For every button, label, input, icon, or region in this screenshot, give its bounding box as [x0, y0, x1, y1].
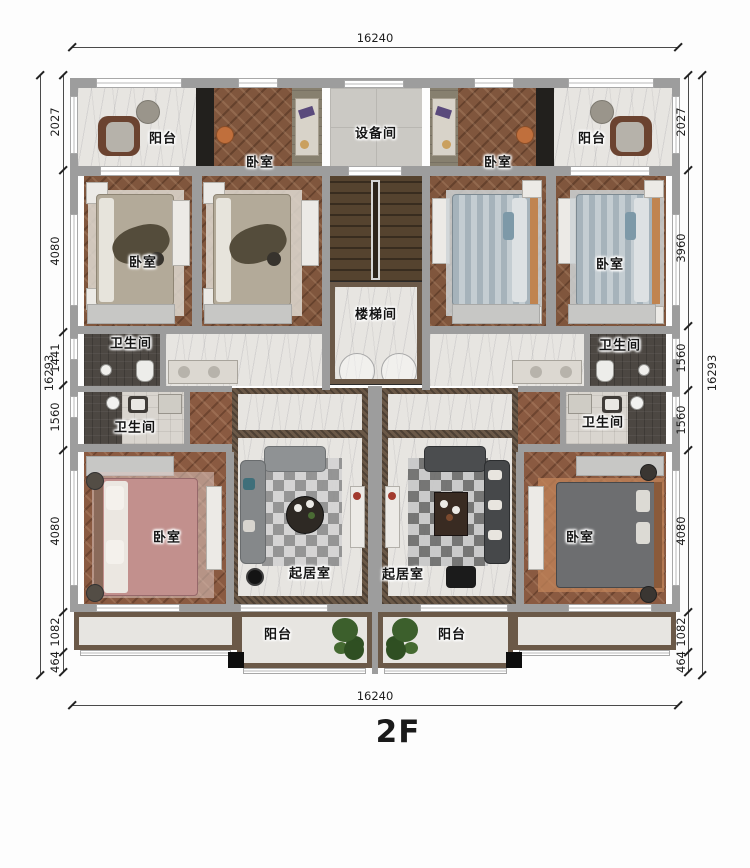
window-undertop-1 [100, 166, 180, 176]
stool-right [446, 566, 476, 588]
bed-d-headboard [652, 196, 660, 304]
window-top-4 [474, 78, 514, 88]
bed-d-pillows [634, 198, 649, 302]
dresser-lower-left [206, 486, 222, 570]
toilet-lower-right-lid [605, 399, 619, 410]
window-top-3 [344, 80, 404, 88]
wall-bath-entry-left [184, 392, 190, 444]
plate-right-2 [452, 506, 460, 514]
plate-left-1 [294, 504, 302, 512]
washer-lower-left [158, 394, 182, 414]
label-bathroom-lower-right: 卫生间 [582, 412, 624, 431]
sofa-right-pillow-2 [488, 500, 502, 510]
side-table-balcony-right [590, 100, 614, 124]
window-left-5 [70, 470, 78, 586]
dimline-right-total [702, 75, 703, 675]
wall-row4-top-right [518, 386, 680, 392]
sink-bath-ul [100, 364, 112, 376]
bed-b-accent-pillow [267, 252, 281, 266]
bed-lower-left-headboard [94, 478, 103, 596]
dim-right-0: 2027 [674, 107, 688, 136]
window-left-4 [70, 396, 78, 418]
dim-top: 16240 [357, 31, 394, 45]
window-top-1 [96, 78, 182, 88]
dimline-left-chain [63, 75, 64, 672]
sofa-left-pillow-2 [243, 520, 255, 532]
label-balcony-top-right: 阳台 [578, 128, 606, 147]
wall-stair-right [422, 166, 430, 390]
side-table-balcony-left [136, 100, 160, 124]
label-bathroom-lower-left: 卫生间 [114, 417, 156, 436]
chair-bedroom-top-right [516, 126, 534, 144]
wall-row4-top-left [70, 386, 232, 392]
plate-left-2 [306, 500, 314, 508]
wall-bed-a-b [192, 176, 202, 326]
dim-left-0: 2027 [48, 107, 62, 136]
window-left-3 [70, 338, 78, 360]
wall-bed-c-d [546, 176, 556, 326]
console-right-flowers [388, 492, 396, 500]
stool-lower-left-bottom [86, 584, 104, 602]
dim-left-4: 4080 [48, 516, 62, 545]
stool-lower-right-top [640, 464, 657, 481]
label-bedroom-mid-left: 卧室 [129, 252, 157, 271]
toilet-bath-ul [136, 360, 154, 382]
balcony-bottom-right-a [513, 612, 676, 650]
balcony-column-left [228, 652, 244, 668]
window-left-2 [70, 214, 78, 306]
label-bedroom-lower-left: 卧室 [153, 527, 181, 546]
wall-bath-div-left [160, 334, 166, 386]
dim-left-3: 1560 [48, 402, 62, 431]
plant-right-leaf-1 [392, 618, 418, 642]
dim-left-6: 464 [48, 651, 62, 673]
chair-bedroom-top-left [216, 126, 234, 144]
label-living-room-right: 起居室 [382, 564, 424, 583]
window-bottom-1 [96, 604, 180, 612]
wall-center-balcony [372, 612, 378, 674]
balcony-window-left-b [243, 668, 366, 674]
label-bathroom-upper-right: 卫生间 [599, 335, 641, 354]
stool-lower-left-top [86, 472, 104, 490]
wardrobe-d [568, 304, 656, 324]
dresser-a [172, 200, 190, 266]
label-stairwell: 楼梯间 [355, 304, 397, 323]
dimline-left-total [40, 75, 41, 675]
dim-right-1: 3960 [674, 233, 688, 262]
plant-right-leaf-2 [386, 640, 406, 660]
speaker-left [246, 568, 264, 586]
wall-bath-entry-right [560, 392, 566, 444]
dim-right-4: 4080 [674, 516, 688, 545]
wall-bedlr-living [516, 452, 524, 604]
bed-lower-right-pillow-1 [636, 490, 650, 512]
vanity-right-sink-2 [560, 366, 572, 378]
door-arc-right [381, 353, 417, 384]
bed-lower-left-pillow-1 [106, 486, 124, 510]
stair-rail [371, 180, 380, 280]
dimline-bottom [72, 705, 678, 706]
balcony-bottom-left-a [74, 612, 237, 650]
plant-left-leaf-2 [344, 640, 364, 660]
window-bottom-3 [420, 604, 508, 612]
wall-bedll-living [226, 452, 234, 604]
label-bedroom-top-right: 卧室 [484, 152, 512, 171]
label-bedroom-lower-right: 卧室 [566, 527, 594, 546]
entry-left-floor [190, 392, 232, 452]
vanity-left-sink-2 [208, 366, 220, 378]
hall-left-floor [238, 394, 362, 430]
dresser-b [301, 200, 319, 266]
flowers-table-right [446, 514, 453, 521]
dim-right-3: 1560 [674, 405, 688, 434]
console-left-flowers [353, 492, 361, 500]
vanity-right-sink-1 [530, 366, 542, 378]
sofa-right-top [424, 446, 486, 472]
label-bathroom-upper-left: 卫生间 [110, 333, 152, 352]
window-undertop-2 [348, 166, 402, 176]
dim-right-6: 464 [674, 651, 688, 673]
dim-left-2: 1441 [48, 343, 62, 372]
plate-right-1 [440, 500, 448, 508]
shower-head-right [630, 396, 644, 410]
dim-right-2: 1560 [674, 343, 688, 372]
desk-lamp-left [300, 140, 309, 149]
floor-title: 2F [376, 714, 421, 750]
sink-bath-ur [638, 364, 650, 376]
window-top-2 [238, 78, 278, 88]
plant-left-leaf-1 [332, 618, 358, 642]
balcony-window-right-a [519, 650, 670, 656]
wardrobe-top-left [196, 88, 214, 172]
entry-right-floor [518, 392, 560, 452]
hall-right-floor [388, 394, 512, 430]
shower-head-left [106, 396, 120, 410]
wardrobe-top-right [536, 88, 554, 172]
label-bedroom-mid-right: 卧室 [596, 254, 624, 273]
window-bottom-2 [240, 604, 328, 612]
sofa-left-chaise [240, 460, 266, 564]
nightstand-c-top [522, 180, 542, 198]
wall-bath-div-right [584, 334, 590, 386]
vanity-left-sink-1 [178, 366, 190, 378]
wall-row4-bot-right [518, 444, 680, 452]
balcony-window-right-b [384, 668, 507, 674]
label-balcony-top-left: 阳台 [149, 128, 177, 147]
dimline-top [72, 47, 678, 48]
dim-left-5: 1082 [48, 617, 62, 646]
dresser-lower-right [528, 486, 544, 570]
door-arc-left [339, 353, 375, 384]
plant-table-left [308, 512, 315, 519]
stairwell-landing [330, 282, 422, 384]
dim-right-total: 16293 [705, 355, 719, 392]
bed-d-blue-pillow [625, 212, 636, 240]
armchair-cushion-right [616, 122, 644, 152]
sofa-right-pillow-1 [488, 470, 502, 480]
wardrobe-a [87, 304, 175, 324]
wardrobe-c [452, 304, 540, 324]
dim-right-5: 1082 [674, 617, 688, 646]
wall-row4-bot-left [70, 444, 232, 452]
bed-c-pillows [512, 198, 527, 302]
label-balcony-bottom-left: 阳台 [264, 624, 292, 643]
dim-left-1: 4080 [48, 236, 62, 265]
dimline-right-chain [688, 75, 689, 672]
wall-row3-left [70, 326, 322, 334]
label-equipment-room: 设备间 [355, 123, 397, 142]
bed-c-blue-pillow [503, 212, 514, 240]
dim-bottom: 16240 [357, 689, 394, 703]
window-left-1 [70, 96, 78, 154]
desk-lamp-right [442, 140, 451, 149]
bed-lower-right-pillow-2 [636, 522, 650, 544]
wall-stair-left [322, 166, 330, 390]
coffee-table-left [286, 496, 324, 534]
balcony-column-right [506, 652, 522, 668]
sofa-left-pillow-1 [243, 478, 255, 490]
sofa-right-pillow-3 [488, 530, 502, 540]
wardrobe-b [204, 304, 292, 324]
toilet-lower-left-lid [131, 399, 145, 410]
floor-plan-canvas: 阳台 卧室 设备间 卧室 阳台 卧室 卧室 楼梯间 卫生间 卫生间 卫生间 卫生… [0, 0, 750, 868]
window-top-5 [568, 78, 654, 88]
label-balcony-bottom-right: 阳台 [438, 624, 466, 643]
sofa-left-top [264, 446, 326, 472]
window-undertop-3 [570, 166, 650, 176]
armchair-cushion-left [106, 122, 134, 152]
label-living-room-left: 起居室 [289, 563, 331, 582]
nightstand-d-top [644, 180, 664, 198]
window-bottom-4 [568, 604, 652, 612]
wall-center [368, 386, 382, 612]
balcony-window-left-a [80, 650, 231, 656]
label-bedroom-top-left: 卧室 [246, 152, 274, 171]
stool-lower-right-bottom [640, 586, 657, 603]
toilet-bath-ur [596, 360, 614, 382]
wall-row3-right [430, 326, 680, 334]
bed-lower-left-pillow-2 [106, 540, 124, 564]
bed-lower-right-headboard [654, 482, 662, 588]
bed-c-headboard [530, 196, 538, 304]
